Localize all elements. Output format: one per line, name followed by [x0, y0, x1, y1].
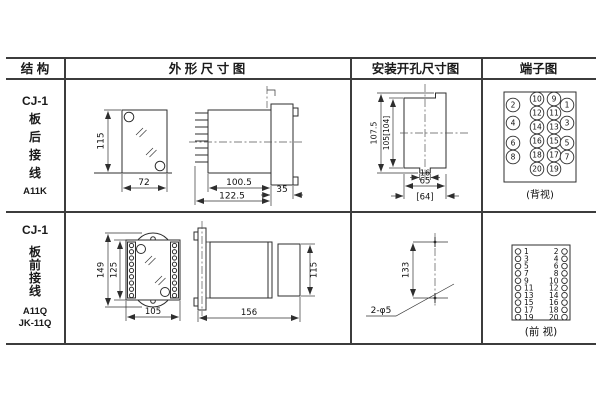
svg-text:16: 16 [532, 137, 542, 146]
svg-text:14: 14 [532, 123, 542, 132]
wiring-char-1: 板 [6, 110, 64, 128]
svg-text:9: 9 [552, 95, 557, 104]
manual-page: 结 构 外 形 尺 寸 图 安装开孔尺寸图 端子图 CJ-1 板 后 接 线 A… [0, 0, 600, 400]
structure-cell-rear-wiring: CJ-1 板 后 接 线 A11K [6, 92, 64, 199]
drill-hole [434, 297, 437, 300]
outline-drawing-front-wiring: 149 125 105 115 156 [64, 212, 350, 345]
model-label: CJ-1 [6, 222, 64, 238]
front-view-front-wiring: 149 125 105 [97, 233, 181, 321]
svg-text:20: 20 [549, 313, 559, 322]
flange-tabs [293, 108, 298, 185]
structure-cell-front-wiring: CJ-1 板 前 接 线 A11Q JK-11Q [6, 222, 64, 330]
svg-text:6: 6 [511, 139, 516, 148]
svg-text:7: 7 [565, 153, 570, 162]
flange-tabs [194, 232, 198, 306]
dim-cutout-height-inner: 105[104] [382, 116, 391, 151]
svg-text:4: 4 [511, 119, 516, 128]
wiring-char-3: 接 [6, 146, 64, 164]
dim-depth-outer: 122.5 [219, 192, 245, 202]
dim-cutout-width-alt: [64] [416, 193, 433, 203]
column-header-outline-dimensions: 外 形 尺 寸 图 [64, 61, 350, 77]
dim-side-depth: 156 [241, 308, 257, 318]
svg-text:12: 12 [532, 109, 542, 118]
svg-text:11: 11 [549, 109, 559, 118]
dim-side-height: 115 [310, 262, 320, 278]
dim-hole-spacing: 133 [402, 262, 412, 278]
svg-text:20: 20 [532, 165, 542, 174]
type-code-2: JK-11Q [6, 318, 64, 330]
wiring-char-4: 线 [6, 164, 64, 182]
outline-drawing-rear-wiring: 115 72 100.5 122.5 35 [64, 80, 350, 212]
column-header-terminal-diagram: 端子图 [481, 61, 596, 77]
dim-front-width: 72 [138, 178, 149, 188]
mounting-holes-front-wiring: 133 2-φ5 [350, 212, 481, 345]
side-view-front-wiring: 115 156 [194, 221, 320, 322]
svg-text:5: 5 [565, 139, 570, 148]
svg-text:2: 2 [511, 101, 516, 110]
front-view-rear-wiring: 115 72 [94, 110, 172, 192]
terminal-circles-back: 10 12 14 16 18 20 9 11 13 15 17 19 2 4 6… [506, 92, 574, 176]
glass-hatch-icon [136, 128, 147, 137]
view-label-rear: (背视) [526, 188, 554, 201]
dim-front-height-outer: 149 [97, 262, 107, 278]
terminal-circles-front: 1 3 5 7 9 11 13 15 17 19 2 4 6 8 10 12 1… [515, 247, 567, 322]
dim-front-width: 105 [145, 307, 161, 317]
view-label-front: (前 视) [525, 325, 558, 338]
column-header-structure: 结 构 [6, 61, 64, 77]
glass-hatch-icon [146, 148, 157, 157]
svg-text:15: 15 [549, 137, 559, 146]
terminal-diagram-front-view: 1 3 5 7 9 11 13 15 17 19 2 4 6 8 10 12 1… [481, 212, 596, 345]
svg-text:8: 8 [511, 153, 516, 162]
table-border-top [6, 57, 596, 59]
wiring-char-2: 后 [6, 128, 64, 146]
mounting-cutout-rear-wiring: 107.5 105[104] 16 65 [64] [350, 80, 481, 212]
svg-text:1: 1 [565, 101, 570, 110]
dim-depth-inner: 100.5 [226, 178, 252, 188]
svg-text:13: 13 [549, 123, 559, 132]
svg-text:10: 10 [532, 95, 542, 104]
svg-text:17: 17 [549, 151, 559, 160]
dim-front-height: 115 [97, 132, 107, 149]
terminal-diagram-rear-view: 10 12 14 16 18 20 9 11 13 15 17 19 2 4 6… [481, 80, 596, 212]
dim-flange-depth: 35 [276, 185, 287, 195]
svg-text:19: 19 [549, 165, 559, 174]
type-code: A11K [6, 184, 64, 199]
mounting-hole [124, 112, 134, 122]
column-header-mounting-hole-dimensions: 安装开孔尺寸图 [350, 61, 481, 77]
mounting-hole [155, 161, 165, 171]
svg-text:19: 19 [524, 313, 534, 322]
hole-spec-label: 2-φ5 [371, 306, 392, 316]
dim-cutout-height-outer: 107.5 [370, 122, 379, 145]
dim-cutout-width: 65 [420, 177, 431, 187]
svg-text:3: 3 [565, 119, 570, 128]
drill-hole [434, 241, 437, 244]
dim-front-height-inner: 125 [110, 262, 120, 278]
model-label: CJ-1 [6, 92, 64, 110]
side-view-rear-wiring: 100.5 122.5 35 [189, 86, 304, 206]
terminal-pins [195, 113, 208, 162]
svg-text:18: 18 [532, 151, 542, 160]
wiring-char-4: 线 [6, 285, 64, 298]
type-code: A11Q [6, 306, 64, 318]
